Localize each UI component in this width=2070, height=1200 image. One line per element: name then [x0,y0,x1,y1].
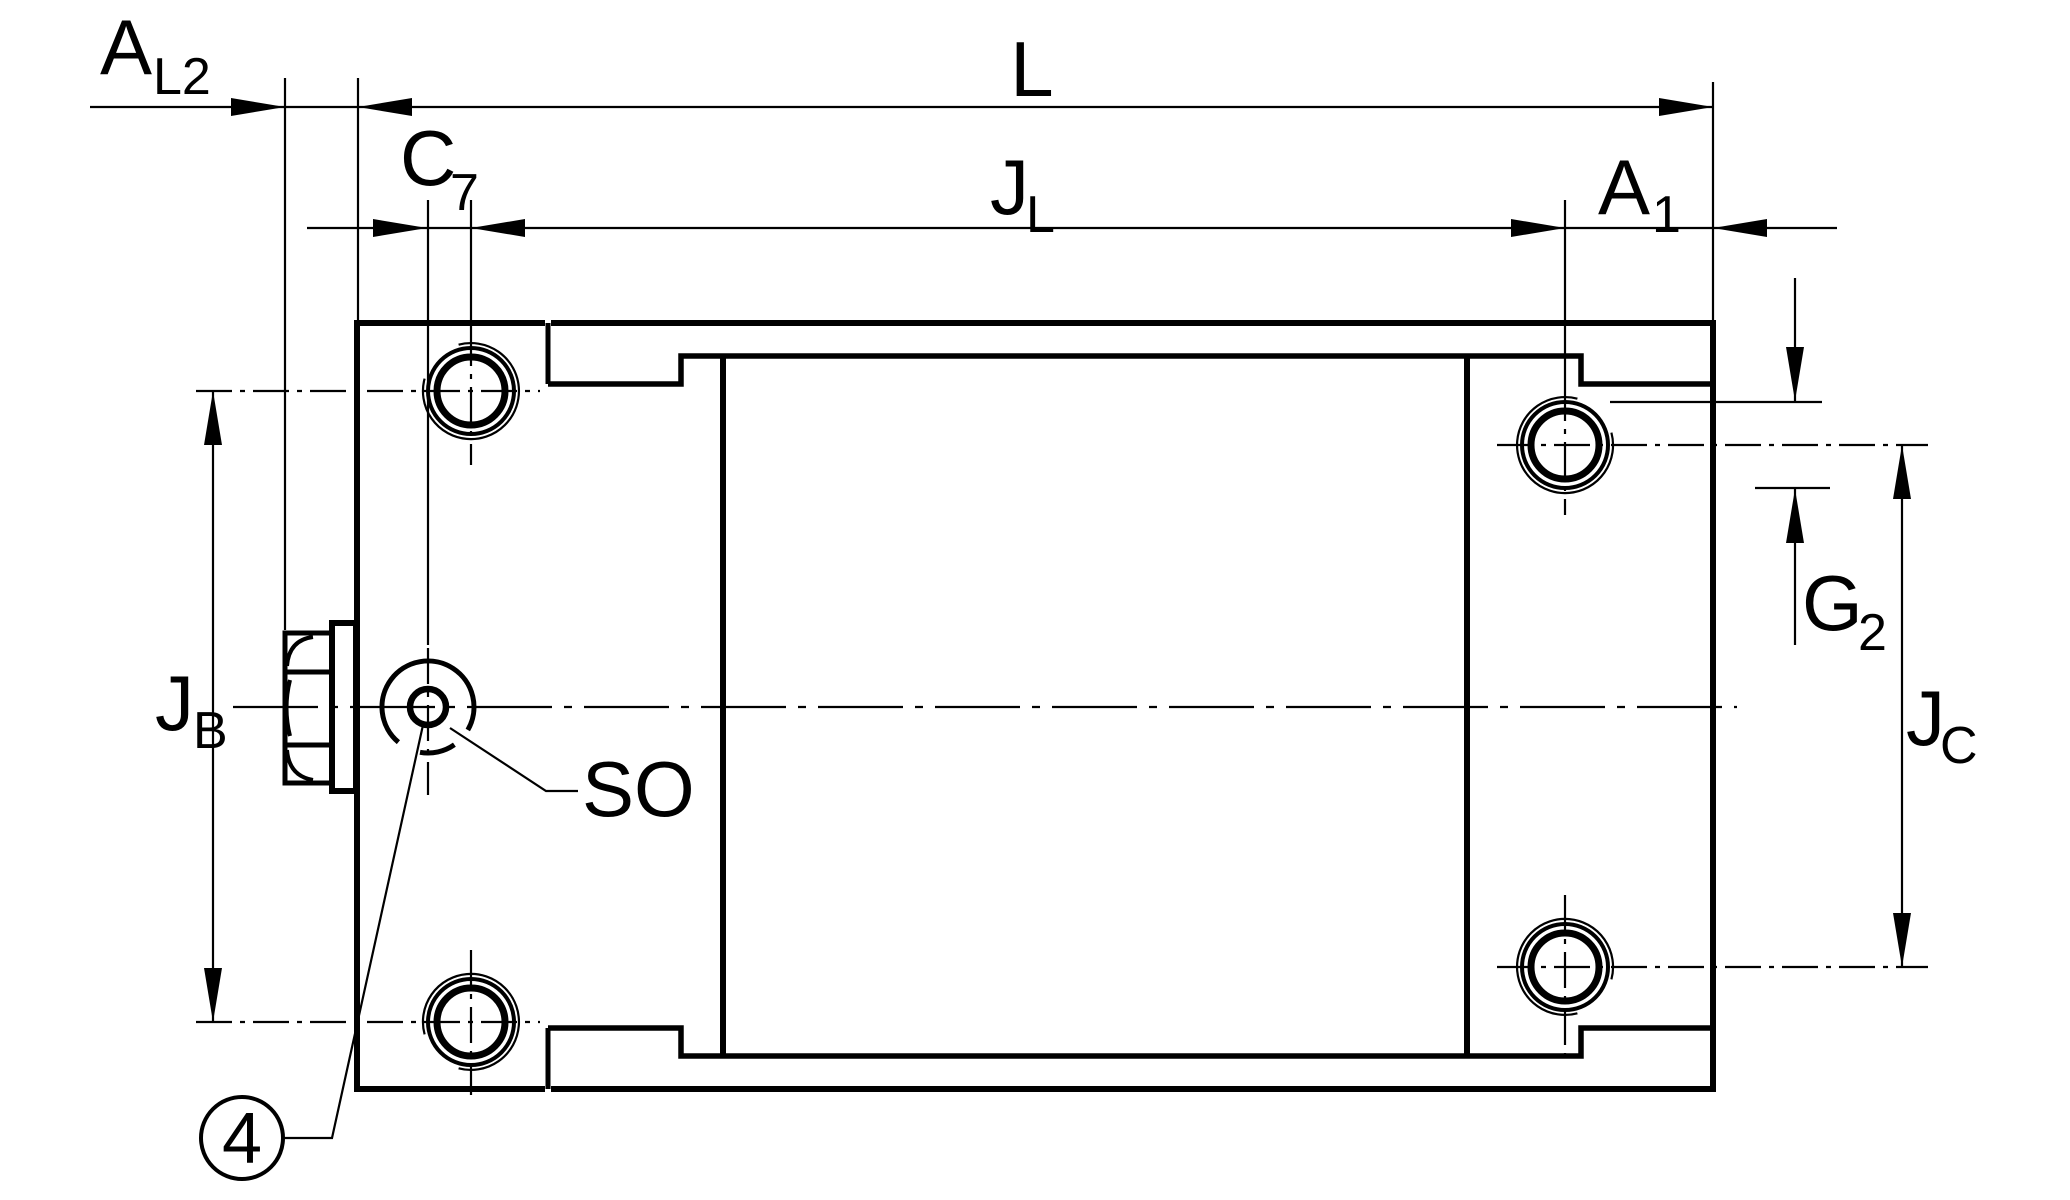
leader-lines [283,725,578,1138]
arrow-g2-up [1786,489,1804,543]
label-jc-sub: C [1940,717,1978,775]
hex-chamfer-arcs [287,637,314,780]
label-a1-sub: 1 [1652,186,1681,244]
dimension-lines [90,107,1902,1022]
label-al2-sub: L2 [153,48,211,106]
label-a1-main: A [1598,143,1650,231]
arrow-a1-right [1713,219,1767,237]
arrow-jc-down [1893,913,1911,967]
label-g2-main: G [1802,559,1863,647]
arrow-al2 [231,98,285,116]
arrow-jc-up [1893,445,1911,499]
arrow-c7-jl [471,219,525,237]
drawing-canvas: A L2 L C 7 J L A 1 G 2 J B J C SO 4 [0,0,2070,1200]
label-g2-sub: 2 [1858,604,1887,662]
arrow-jb-up [204,391,222,445]
label-l: L [1010,25,1053,113]
arrow-jl-a1 [1511,219,1565,237]
label-so: SO [582,745,695,833]
arrow-g2-down [1786,347,1804,401]
label-jl-sub: L [1026,186,1055,244]
carriage-top-view-drawing: A L2 L C 7 J L A 1 G 2 J B J C SO 4 [0,0,2070,1200]
arrow-c7-left [373,219,427,237]
label-jb-sub: B [193,702,228,760]
label-al2-main: A [100,3,152,91]
leader-so [450,728,578,791]
label-c7-main: C [400,114,456,202]
arrow-l-right [1659,98,1713,116]
label-jb-main: J [155,659,194,747]
label-balloon-number: 4 [222,1099,262,1179]
label-jl-main: J [990,143,1029,231]
dimension-labels: A L2 L C 7 J L A 1 G 2 J B J C SO 4 [100,3,1978,1179]
label-c7-sub: 7 [450,164,479,222]
arrow-jb-down [204,968,222,1022]
